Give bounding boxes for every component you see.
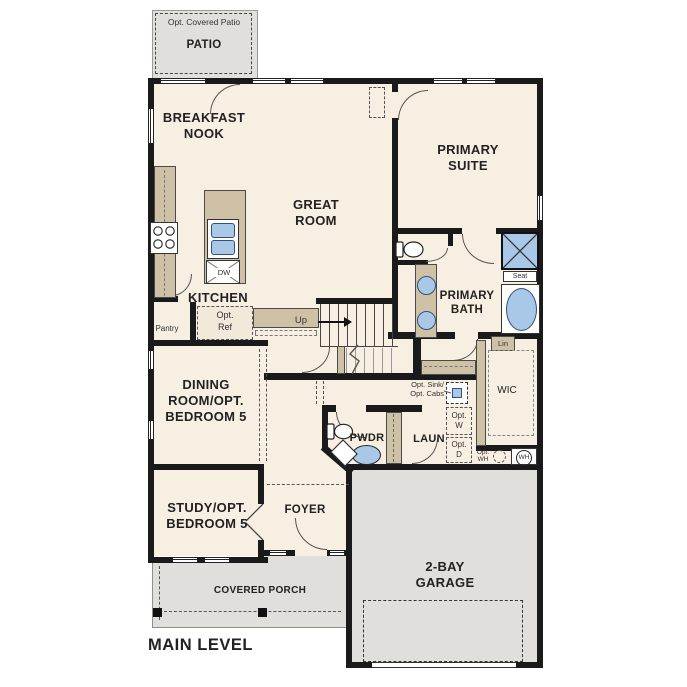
- dishwasher: DW: [206, 260, 240, 284]
- opt-dryer-label: Opt. D: [447, 440, 471, 460]
- wall: [148, 464, 264, 470]
- patio-label: PATIO: [158, 38, 250, 52]
- laundry-pocket-dash: [393, 414, 394, 462]
- wall: [346, 468, 352, 668]
- opt-covered-patio-label: Opt. Covered Patio: [158, 17, 250, 27]
- stair-treads-up: [320, 304, 398, 347]
- window: [433, 78, 463, 84]
- porch-step-area: [263, 556, 348, 564]
- linen-closet: Lin: [491, 336, 515, 351]
- window: [172, 557, 198, 563]
- cased-opening: [323, 381, 324, 404]
- wall: [322, 405, 336, 412]
- wall: [366, 405, 422, 412]
- wall: [264, 373, 422, 380]
- opt-cabinet-dash: [255, 330, 317, 336]
- window: [252, 78, 286, 84]
- primary-suite-label: PRIMARY SUITE: [418, 142, 518, 174]
- wic-label: WIC: [490, 385, 524, 396]
- porch-post: [258, 608, 267, 617]
- opt-dryer-outline: Opt. D: [446, 437, 472, 463]
- stairs-up-arrowhead: [344, 317, 352, 327]
- water-heater-label: WH: [519, 454, 530, 461]
- linen-label: Lin: [492, 339, 514, 348]
- hall-cabinets: [421, 360, 476, 375]
- floor-plan: Opt. Covered Patio PATIO: [0, 0, 687, 687]
- window: [204, 557, 230, 563]
- stair-treads-lower: [346, 348, 398, 373]
- opt-washer-label: Opt. W: [447, 411, 471, 431]
- primary-bath-label: PRIMARY BATH: [430, 289, 504, 317]
- window: [269, 550, 287, 556]
- dining-label: DINING ROOM/OPT. BEDROOM 5: [150, 377, 262, 425]
- opt-ref-label: Opt. Ref: [199, 310, 251, 333]
- stairs-up-label: Up: [290, 315, 312, 326]
- opt-washer-outline: Opt. W: [446, 407, 472, 435]
- kitchen-label: KITCHEN: [176, 290, 260, 306]
- tub-basin: [506, 288, 537, 331]
- opt-water-heater-label: Opt. WH: [472, 450, 494, 464]
- cased-opening: [316, 381, 317, 404]
- garage-door-recess: [363, 600, 523, 662]
- opt-water-heater: [493, 450, 506, 463]
- water-heater-box: WH: [511, 448, 537, 465]
- foyer-label: FOYER: [281, 503, 329, 517]
- great-room-label: GREAT ROOM: [276, 197, 356, 229]
- wall: [537, 78, 543, 668]
- opt-sink-label: Opt. Sink/ Opt. Cabs: [400, 380, 444, 398]
- pwdr-label: PWDR: [344, 432, 390, 445]
- garage-label: 2-BAY GARAGE: [402, 559, 488, 591]
- wall: [190, 302, 196, 340]
- window: [329, 550, 345, 556]
- bath-toilet: [395, 237, 425, 262]
- window: [466, 78, 496, 84]
- stair-side-wall: [337, 346, 345, 374]
- wall: [258, 464, 264, 504]
- pantry-label: Pantry: [146, 324, 188, 333]
- opt-sink-bowl: [452, 388, 462, 398]
- shower-seat-label: Seat: [504, 273, 536, 280]
- window: [148, 350, 154, 370]
- wall: [258, 540, 264, 557]
- stairs-up-arrow: [318, 321, 344, 323]
- porch-label: COVERED PORCH: [200, 585, 320, 597]
- range: [150, 222, 178, 254]
- island-sink: [207, 219, 239, 259]
- plan-title: MAIN LEVEL: [148, 635, 308, 655]
- hall-cabinet-dash: [424, 366, 473, 367]
- sink-bowl: [211, 240, 235, 255]
- wall: [148, 78, 154, 563]
- wic-shelf-wall: [476, 340, 486, 446]
- porch-dash: [159, 611, 341, 612]
- breakfast-nook-label: BREAKFAST NOOK: [152, 110, 256, 142]
- pwdr-sink: [352, 445, 381, 465]
- shower: [501, 232, 539, 270]
- cased-opening: [266, 349, 267, 461]
- wall: [148, 340, 268, 346]
- dishwasher-label: DW: [215, 268, 233, 277]
- porch-post: [153, 608, 162, 617]
- water-heater: WH: [516, 450, 532, 466]
- garage-door: [372, 662, 516, 668]
- range-burners: [151, 223, 177, 253]
- window: [160, 78, 206, 84]
- tub: [501, 284, 540, 334]
- study-label: STUDY/OPT. BEDROOM 5: [150, 500, 264, 532]
- window: [290, 78, 324, 84]
- art-niche: [369, 87, 385, 118]
- wall: [392, 84, 398, 92]
- window: [537, 195, 543, 221]
- opt-sink: [446, 382, 468, 404]
- wall: [448, 228, 453, 246]
- shower-glass-lines: [503, 234, 537, 268]
- foyer-ceiling-break: [267, 484, 349, 485]
- sink-bowl: [211, 223, 235, 238]
- shower-seat: Seat: [503, 271, 537, 282]
- toilet-icon: [395, 237, 425, 262]
